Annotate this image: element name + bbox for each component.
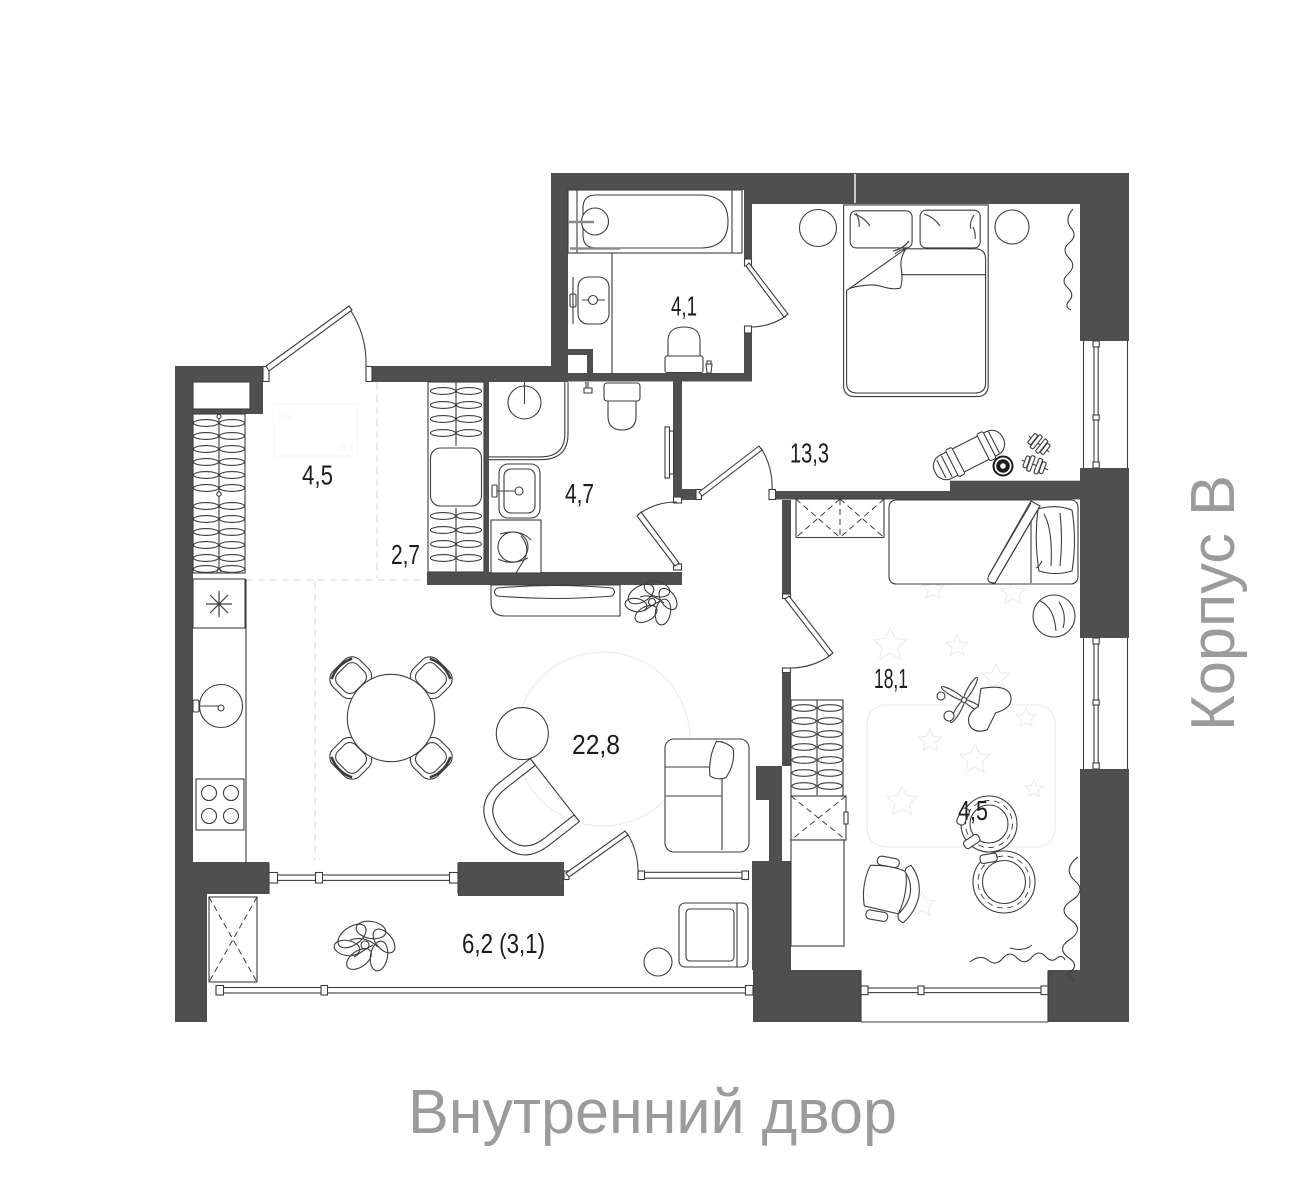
svg-text:4,5: 4,5 — [302, 460, 333, 491]
svg-text:Корпус В: Корпус В — [1179, 475, 1248, 731]
svg-text:2,7: 2,7 — [391, 539, 420, 570]
svg-text:IH: IH — [278, 409, 291, 424]
svg-text:4,1: 4,1 — [671, 291, 697, 322]
svg-text:Внутренний двор: Внутренний двор — [408, 1078, 897, 1147]
svg-text:4,7: 4,7 — [565, 478, 594, 509]
svg-text:BY: BY — [338, 439, 356, 454]
svg-text:18,1: 18,1 — [874, 663, 908, 694]
svg-text:13,3: 13,3 — [790, 438, 829, 469]
svg-text:4,5: 4,5 — [958, 795, 988, 826]
svg-text:6,2 (3,1): 6,2 (3,1) — [462, 928, 545, 959]
svg-text:22,8: 22,8 — [572, 729, 620, 760]
